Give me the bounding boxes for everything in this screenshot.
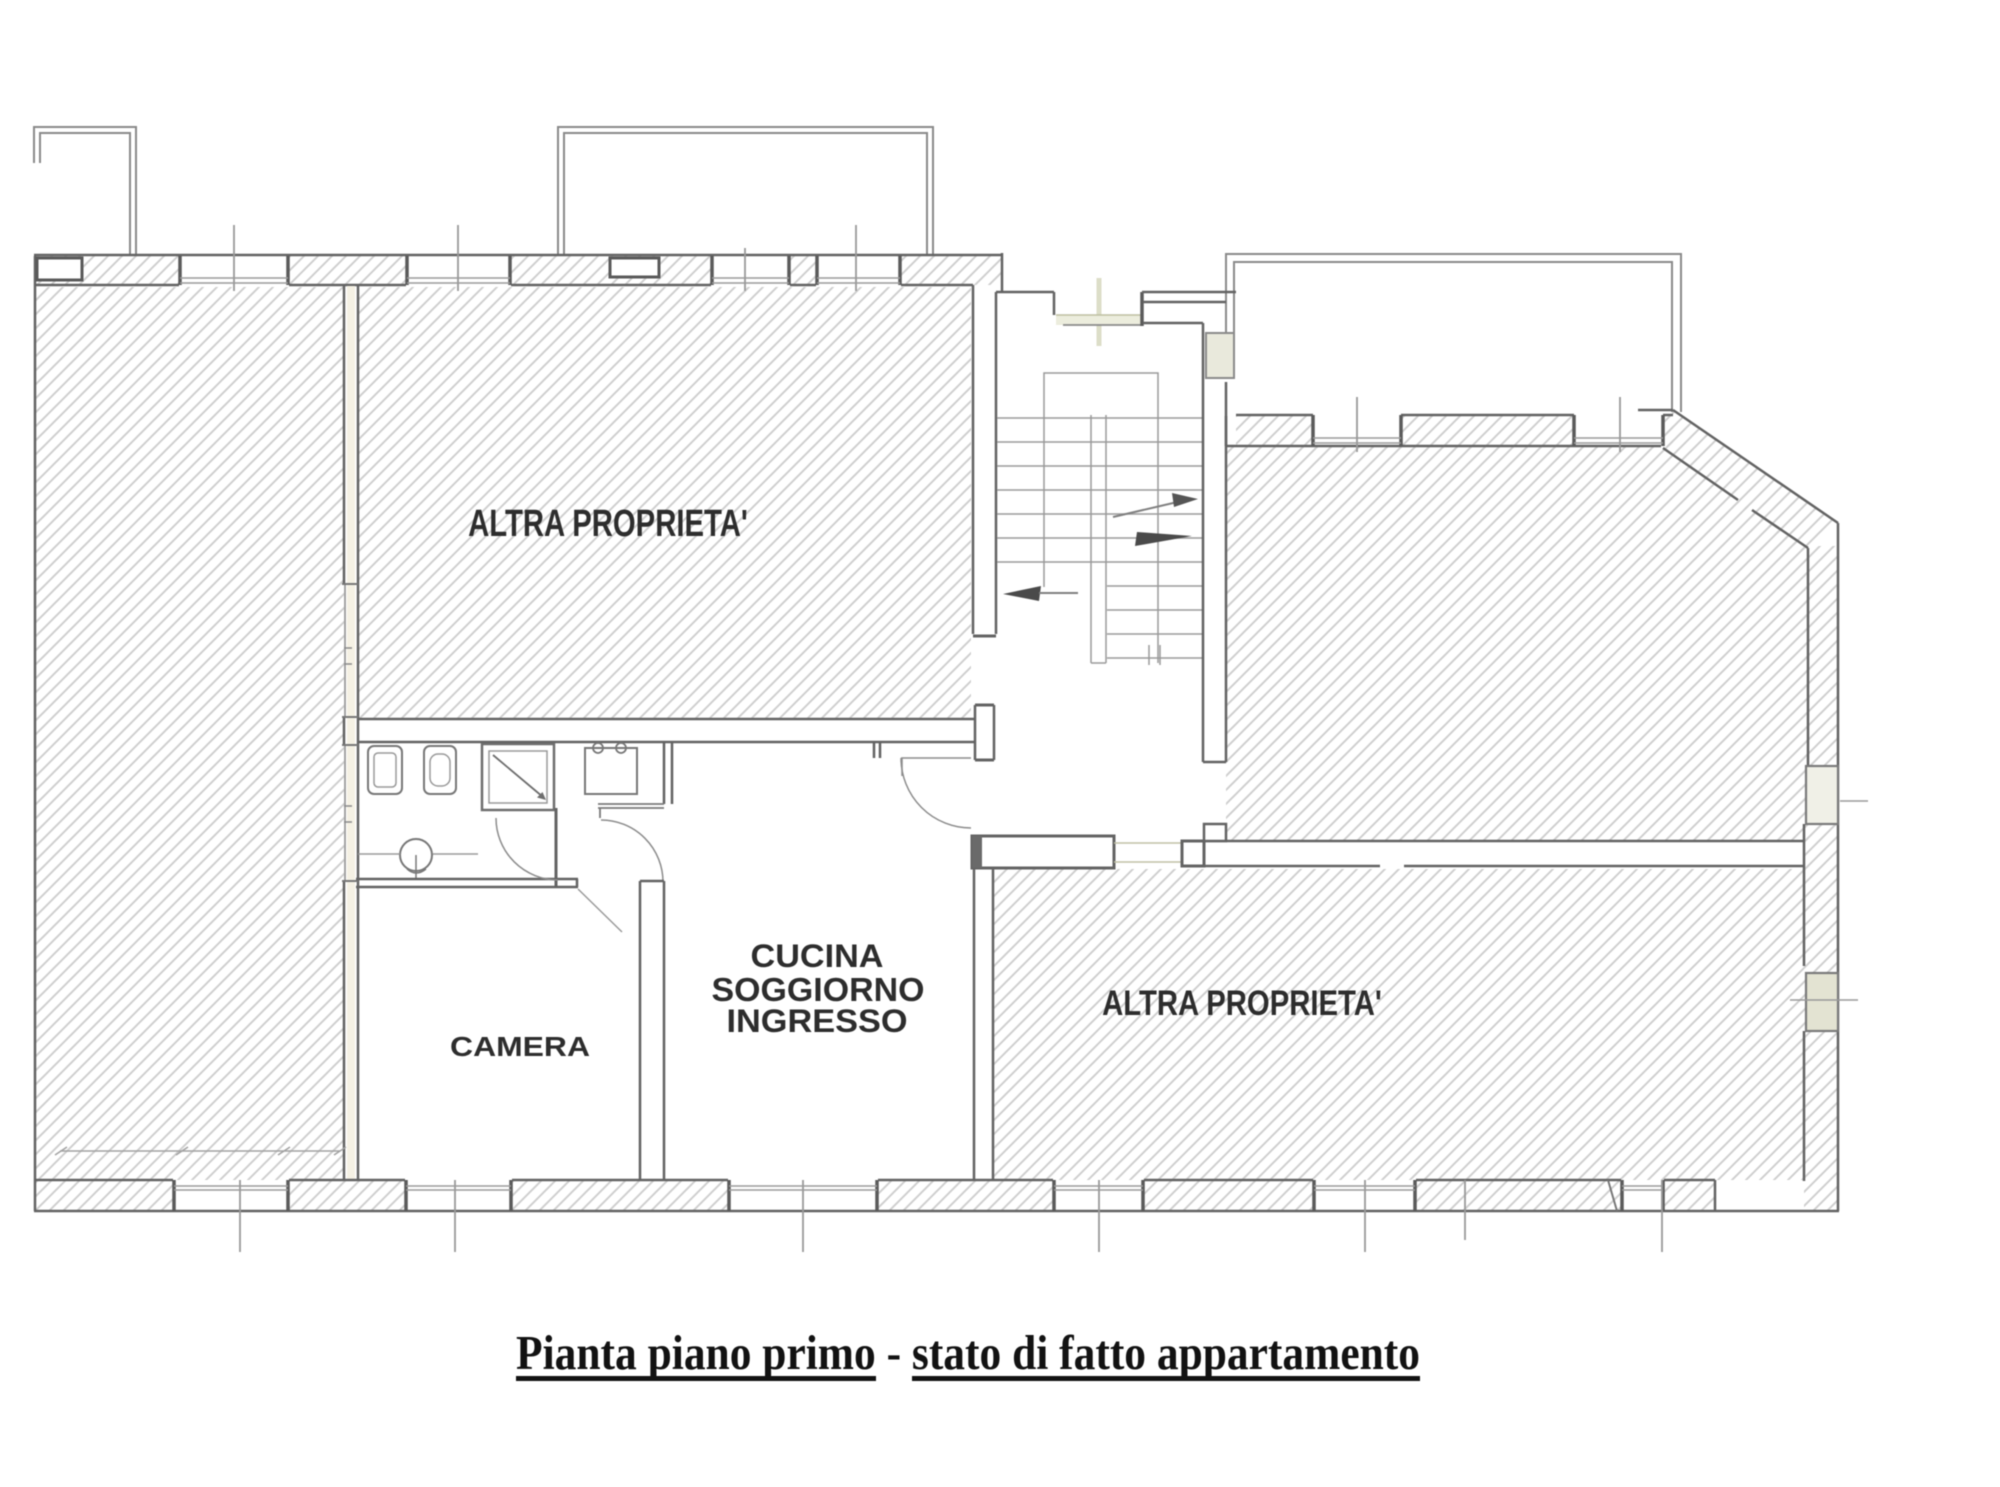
svg-text:ALTRA PROPRIETA': ALTRA PROPRIETA': [1102, 984, 1382, 1023]
svg-text:INGRESSO: INGRESSO: [726, 1004, 907, 1040]
svg-text:Pianta piano primo - stato di: Pianta piano primo - stato di fatto appa…: [516, 1327, 1420, 1381]
svg-text:ALTRA PROPRIETA': ALTRA PROPRIETA': [468, 502, 748, 545]
svg-text:CUCINA: CUCINA: [751, 939, 884, 975]
svg-text:CAMERA: CAMERA: [450, 1032, 590, 1063]
